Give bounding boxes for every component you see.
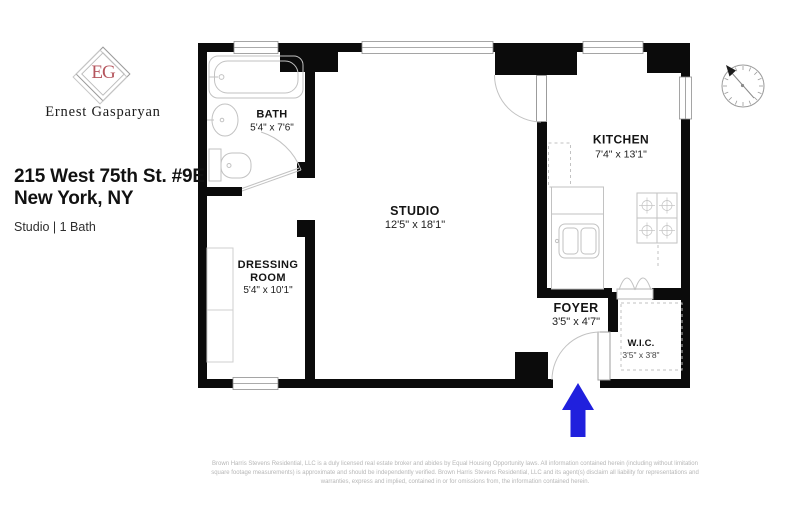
kitchen-door-swing xyxy=(495,75,547,122)
kitchen-side-window xyxy=(680,77,692,119)
room-label-kitchen: KITCHEN 7'4" x 13'1" xyxy=(593,134,649,161)
bifold-closet-doors xyxy=(617,278,653,299)
floorplan-page: EG Ernest Gasparyan 215 West 75th St. #9… xyxy=(0,0,800,505)
refrigerator-outline xyxy=(549,143,571,187)
compass-icon xyxy=(722,65,764,107)
entrance-door-swing xyxy=(552,332,610,380)
address-line-1: 215 West 75th St. #9E xyxy=(14,166,205,188)
room-label-dressing-room: DRESSING ROOM 5'4" x 10'1" xyxy=(238,259,299,297)
room-label-wic: W.I.C. 3'5" x 3'8" xyxy=(622,339,659,361)
kitchen-fixtures xyxy=(495,75,678,289)
floorplan-graphic xyxy=(0,0,800,505)
room-label-bath: BATH 5'4" x 7'6" xyxy=(250,108,294,133)
disclaimer-text: Brown Harris Stevens Residential, LLC is… xyxy=(211,460,699,487)
room-label-foyer: FOYER 3'5" x 4'7" xyxy=(552,301,600,329)
entrance-arrow-icon xyxy=(562,383,594,437)
agent-name: Ernest Gasparyan xyxy=(45,104,160,121)
studio-window xyxy=(362,42,493,54)
dressing-room-window xyxy=(233,378,278,390)
address-line-2: New York, NY xyxy=(14,188,133,210)
agent-logo-monogram: EG xyxy=(91,62,114,84)
room-label-studio: STUDIO 12'5" x 18'1" xyxy=(385,204,445,232)
stove-icon xyxy=(637,193,677,243)
toilet-icon xyxy=(209,149,251,181)
kitchen-top-window xyxy=(583,42,643,54)
dressing-closet xyxy=(207,248,233,362)
listing-summary: Studio | 1 Bath xyxy=(14,220,96,234)
bath-window xyxy=(234,42,278,54)
bath-sink-icon xyxy=(207,104,238,136)
